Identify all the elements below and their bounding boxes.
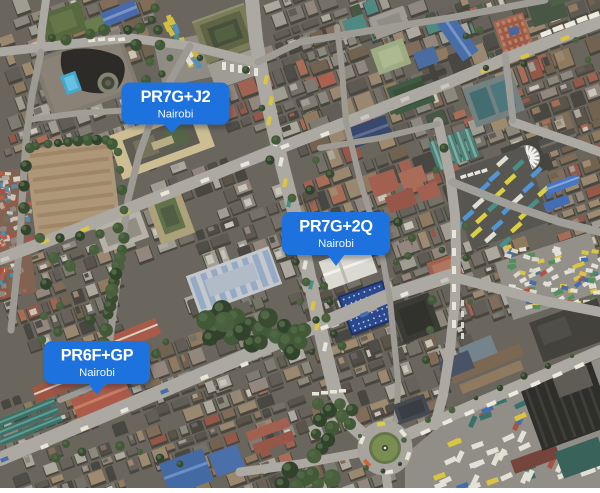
svg-text:Nairobi: Nairobi bbox=[158, 109, 194, 121]
svg-text:PR7G+J2: PR7G+J2 bbox=[141, 88, 211, 106]
svg-text:PR7G+2Q: PR7G+2Q bbox=[299, 218, 372, 236]
svg-text:Nairobi: Nairobi bbox=[79, 367, 115, 379]
svg-text:PR6F+GP: PR6F+GP bbox=[61, 347, 134, 365]
svg-text:Nairobi: Nairobi bbox=[318, 238, 354, 250]
